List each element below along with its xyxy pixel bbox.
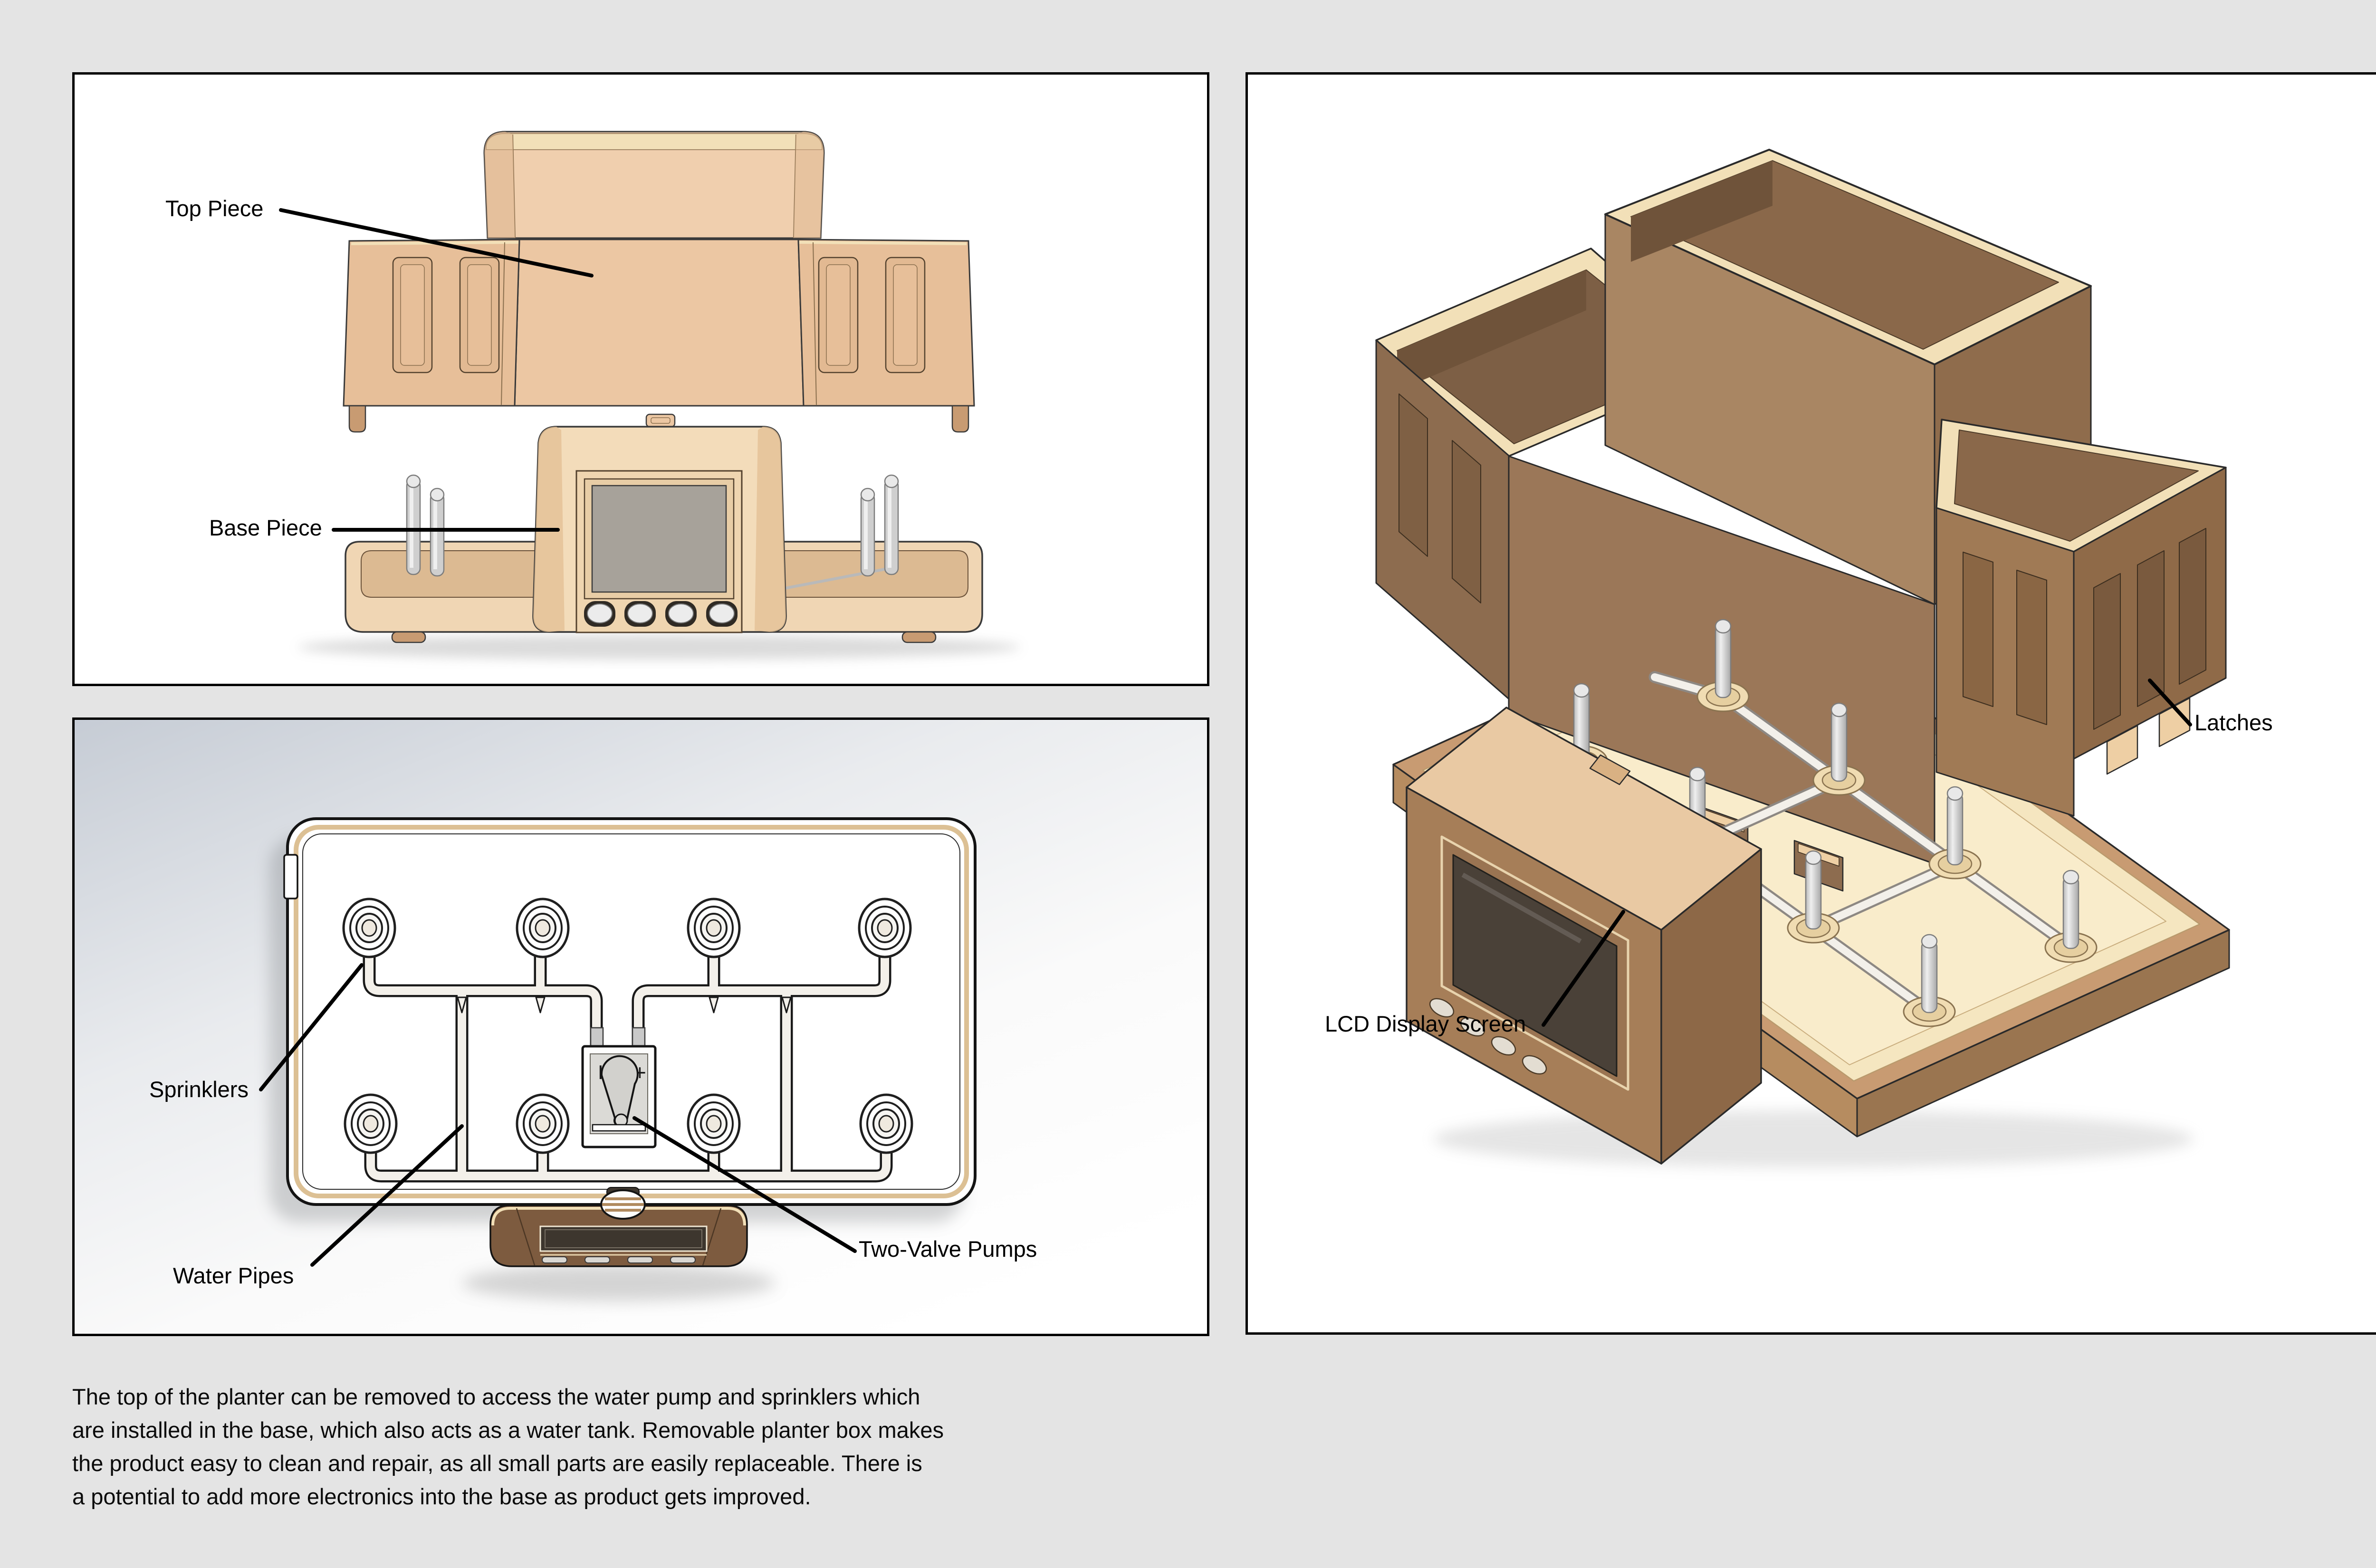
caption-paragraph: The top of the planter can be removed to… <box>72 1380 1222 1513</box>
isometric-drawing <box>1248 75 2376 1332</box>
two-valve-pumps-label: Two-Valve Pumps <box>859 1237 1037 1262</box>
base-handle-tab <box>646 414 675 427</box>
lcd-screen <box>592 486 726 592</box>
caption-line: the product easy to clean and repair, as… <box>72 1447 1222 1480</box>
caption-line: are installed in the base, which also ac… <box>72 1414 1222 1447</box>
front-view-panel: Top Piece Base Piece <box>72 72 1209 686</box>
top-piece-foot-left <box>349 406 365 432</box>
top-piece-foot-right <box>952 406 968 432</box>
pump-drawing: I + <box>583 1028 655 1147</box>
top-piece-drawing <box>344 132 974 432</box>
lcd-display-label: LCD Display Screen <box>1325 1012 1526 1036</box>
caption-line: The top of the planter can be removed to… <box>72 1380 1222 1414</box>
isometric-view-panel: Latches LCD Display Screen <box>1245 72 2376 1335</box>
top-piece-label: Top Piece <box>165 196 263 221</box>
document-page: Top Piece Base Piece <box>0 0 2376 1568</box>
sprinklers-label: Sprinklers <box>149 1077 249 1102</box>
latches-label: Latches <box>2194 710 2273 735</box>
top-view-drawing: I + <box>75 720 1207 1334</box>
water-pipes-label: Water Pipes <box>173 1263 294 1288</box>
caption-line: a potential to add more electronics into… <box>72 1480 1222 1513</box>
front-view-drawing <box>75 75 1207 684</box>
top-view-panel: I + <box>72 717 1209 1336</box>
plate-side-clip <box>284 855 297 899</box>
base-piece-label: Base Piece <box>209 516 322 540</box>
